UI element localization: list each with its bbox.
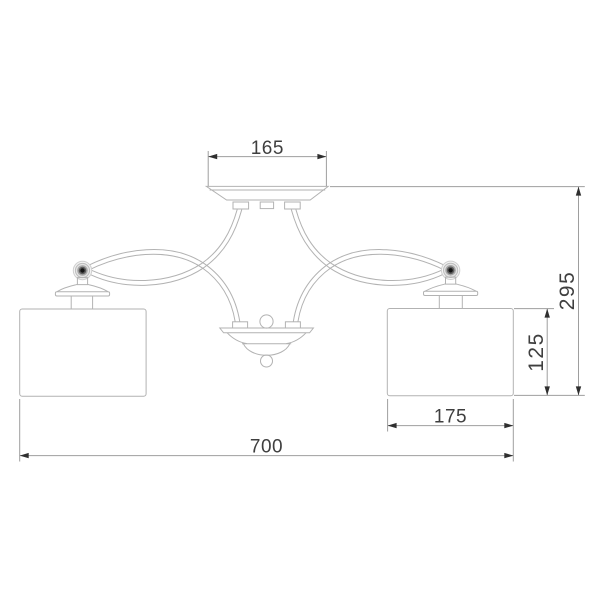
bowl-plate	[220, 328, 314, 333]
canopy-socket-right	[285, 202, 301, 209]
bowl-top-ball	[260, 315, 273, 328]
dim-shade-width: 175	[388, 399, 514, 432]
dim-shade-height: 125	[514, 309, 585, 396]
dim-canopy-width: 165	[208, 138, 326, 186]
left-knob-core	[80, 268, 84, 272]
left-holder-brim	[55, 292, 109, 296]
bowl-foot-left	[233, 322, 248, 328]
dim-canopy-width-label: 165	[251, 138, 284, 159]
left-shade	[20, 309, 146, 396]
right-holder-cone	[425, 284, 476, 291]
center-bowl	[220, 315, 314, 367]
bowl-foot-right	[285, 322, 300, 328]
left-holder-cone	[57, 285, 108, 292]
right-holder-stem	[439, 296, 462, 309]
right-knob-core	[448, 268, 452, 272]
bowl-body	[227, 333, 306, 356]
left-knob	[73, 261, 91, 279]
right-scroll-arms	[291, 210, 445, 322]
dim-shade-width-label: 175	[434, 406, 467, 427]
ceiling-canopy	[206, 186, 328, 209]
canopy-socket-center	[260, 202, 273, 209]
left-scroll-arms	[88, 210, 242, 322]
canopy-socket-left	[233, 202, 249, 209]
left-arm-bowl-curve	[88, 250, 240, 322]
right-shade	[387, 309, 513, 396]
bowl-finial-ball	[261, 355, 273, 367]
right-shade-holder	[424, 277, 478, 308]
dim-overall-width-label: 700	[250, 437, 283, 458]
right-arm-canopy-curve	[291, 210, 445, 286]
right-holder-brim	[424, 291, 478, 295]
dim-overall-height-label: 295	[556, 271, 579, 311]
canopy-plate	[206, 186, 328, 200]
left-shade-holder	[55, 278, 109, 309]
left-holder-stem	[71, 296, 92, 309]
right-arm-bowl-curve	[293, 250, 445, 322]
technical-drawing-canvas: 165 700 175 125 295	[0, 0, 600, 600]
dim-shade-height-label: 125	[525, 332, 548, 372]
fixture	[20, 186, 514, 396]
left-arm-canopy-curve	[88, 210, 242, 286]
chandelier-dimension-drawing: 165 700 175 125 295	[0, 0, 600, 600]
